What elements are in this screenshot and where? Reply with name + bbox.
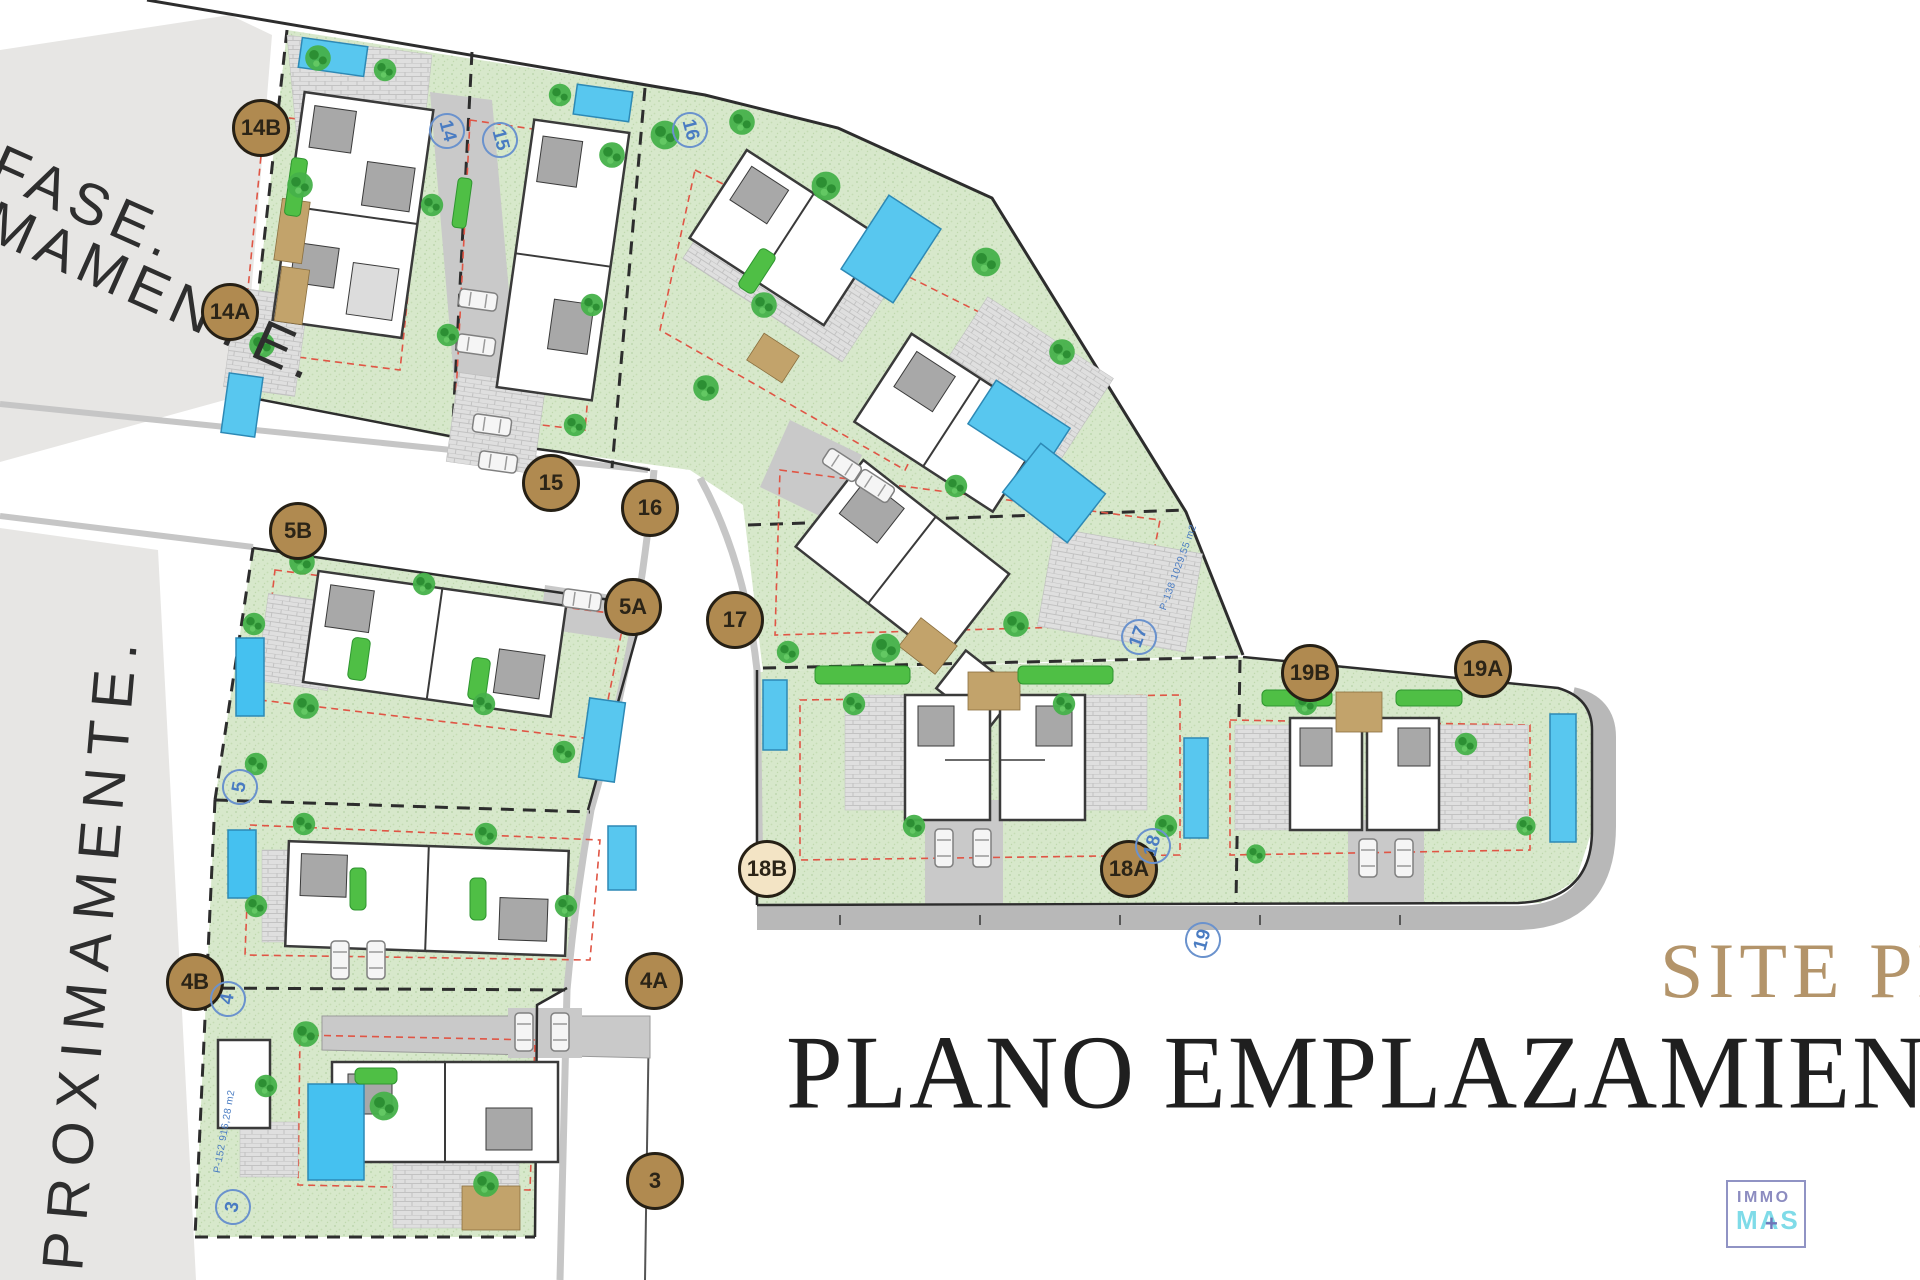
plot-badge-4A: 4A: [625, 952, 683, 1010]
plot-badge-16: 16: [621, 479, 679, 537]
site-plan-title-es: PLANO EMPLAZAMIENTO: [786, 1016, 1920, 1132]
plot-badge-19A: 19A: [1454, 640, 1512, 698]
logo-plus-icon: +: [1765, 1213, 1780, 1235]
logo-line-immo: IMMO: [1737, 1190, 1804, 1206]
plot-badge-5A: 5A: [604, 578, 662, 636]
immo-mas-logo: IMMO MAS+: [1726, 1180, 1806, 1248]
plot-badge-3: 3: [626, 1152, 684, 1210]
plot-badge-17: 17: [706, 591, 764, 649]
plot-badge-14B: 14B: [232, 99, 290, 157]
site-plan-page: FASE. MAMENTE. PROXIMAMENTE. SITE PLAN P…: [0, 0, 1920, 1280]
plot-badge-18B: 18B: [738, 840, 796, 898]
plot-badge-19B: 19B: [1281, 644, 1339, 702]
plot-badge-15: 15: [522, 454, 580, 512]
building-4: [285, 841, 568, 956]
plot-badge-14A: 14A: [201, 283, 259, 341]
plot-badge-5B: 5B: [269, 502, 327, 560]
site-plan-title-en: SITE PLAN: [1660, 928, 1920, 1014]
logo-line-mas: MAS+: [1736, 1207, 1804, 1233]
